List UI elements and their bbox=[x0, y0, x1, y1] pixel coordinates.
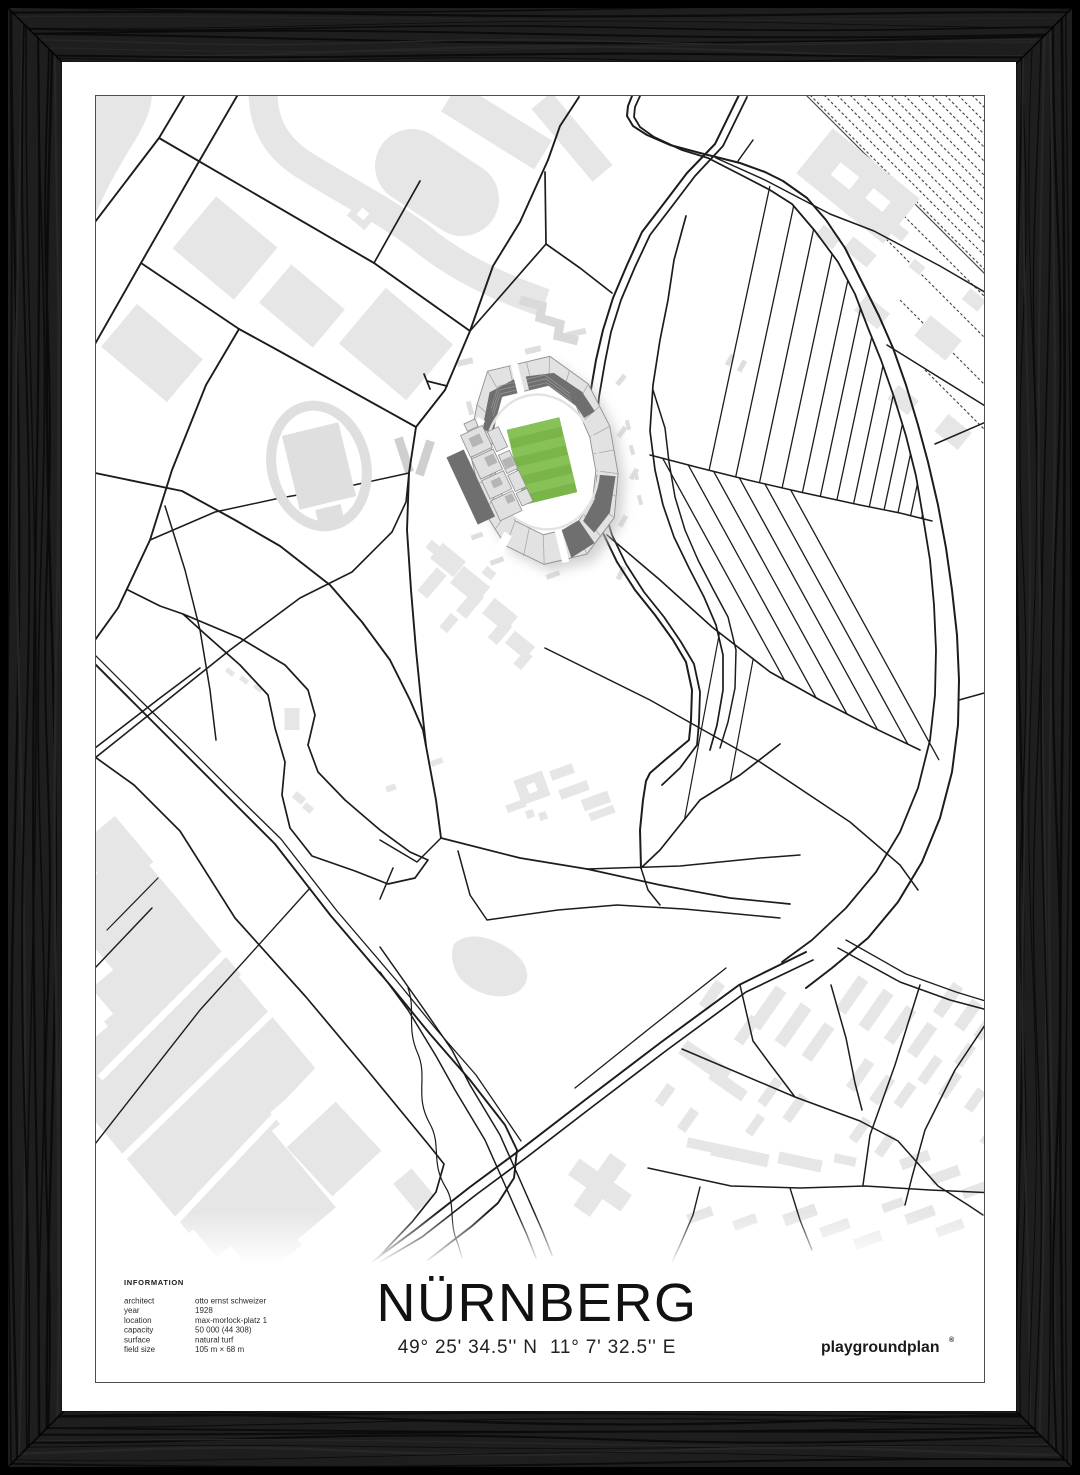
svg-text:max-morlock-platz 1: max-morlock-platz 1 bbox=[195, 1316, 268, 1325]
svg-text:natural turf: natural turf bbox=[195, 1335, 234, 1344]
svg-text:50 000 (44 308): 50 000 (44 308) bbox=[195, 1326, 252, 1335]
svg-text:field size: field size bbox=[124, 1345, 156, 1354]
svg-text:105 m × 68 m: 105 m × 68 m bbox=[195, 1345, 244, 1354]
svg-text:49° 25' 34.5'' N 11° 7' 32.5': 49° 25' 34.5'' N 11° 7' 32.5'' E bbox=[398, 1337, 677, 1358]
svg-text:INFORMATION: INFORMATION bbox=[124, 1278, 184, 1287]
svg-text:location: location bbox=[124, 1316, 152, 1325]
svg-text:year: year bbox=[124, 1306, 140, 1315]
svg-text:capacity: capacity bbox=[124, 1326, 153, 1335]
svg-text:®: ® bbox=[949, 1336, 955, 1344]
svg-text:surface: surface bbox=[124, 1335, 151, 1344]
svg-text:playgroundplan: playgroundplan bbox=[821, 1339, 939, 1356]
svg-text:otto ernst schweizer: otto ernst schweizer bbox=[195, 1297, 266, 1306]
svg-text:architect: architect bbox=[124, 1297, 155, 1306]
svg-text:NÜRNBERG: NÜRNBERG bbox=[376, 1273, 697, 1333]
svg-text:1928: 1928 bbox=[195, 1306, 213, 1315]
